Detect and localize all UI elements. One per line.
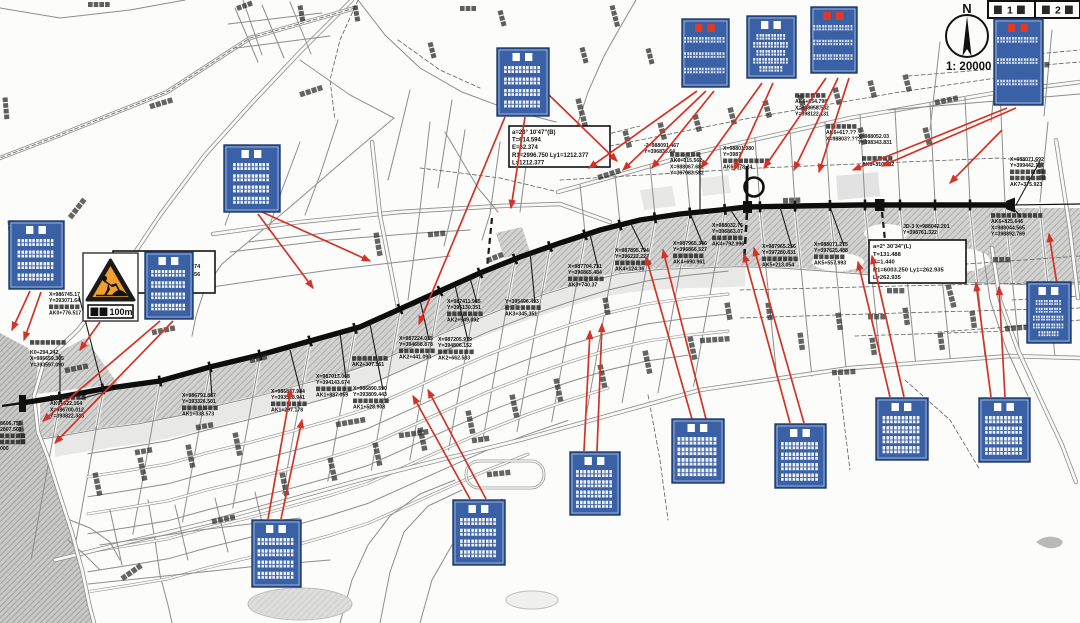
svg-text:AK2+949.092: AK2+949.092 — [447, 318, 479, 324]
svg-text:X=987205.979: X=987205.979 — [438, 337, 472, 343]
svg-text:Y=394806.152: Y=394806.152 — [438, 343, 472, 349]
svg-text:AK2+307.561: AK2+307.561 — [352, 362, 384, 368]
svg-text:AK0+776.517: AK0+776.517 — [49, 311, 81, 317]
svg-text:X=987965.346: X=987965.346 — [673, 241, 707, 247]
svg-text:AK3+740.37: AK3+740.37 — [568, 283, 597, 289]
svg-text:Y=398761.322: Y=398761.322 — [903, 230, 937, 236]
svg-text:E=62.374: E=62.374 — [512, 145, 539, 151]
svg-text:X=988071.275: X=988071.275 — [814, 242, 848, 248]
svg-text:Y=396865.484: Y=396865.484 — [568, 270, 602, 276]
svg-text:Y=398892.769: Y=398892.769 — [991, 232, 1025, 238]
svg-text:Y=397280.831: Y=397280.831 — [762, 250, 796, 256]
svg-text:X=988032.76: X=988032.76 — [712, 223, 743, 229]
svg-text:X=987013.068: X=987013.068 — [316, 374, 350, 380]
svg-text:X=987411.985: X=987411.985 — [447, 299, 481, 305]
svg-text:AK4+690.961: AK4+690.961 — [673, 260, 705, 266]
svg-text:Y=396836.64: Y=396836.64 — [644, 149, 675, 155]
svg-text:Y=396863.07: Y=396863.07 — [712, 229, 743, 235]
svg-text:R1=6003.250 Ly1=262.935: R1=6003.250 Ly1=262.935 — [873, 267, 944, 273]
svg-text:T=131.488: T=131.488 — [873, 252, 902, 258]
svg-text:Y=393326.501: Y=393326.501 — [182, 399, 216, 405]
svg-text:X=987704.731: X=987704.731 — [568, 264, 602, 270]
svg-text:AK3+345.351: AK3+345.351 — [505, 311, 537, 317]
svg-text:Y=393528.941: Y=393528.941 — [271, 395, 305, 401]
svg-text:X=988044.565: X=988044.565 — [991, 225, 1025, 231]
svg-text:R1=2996.750 Ly1=1212.377: R1=2996.750 Ly1=1212.377 — [512, 153, 589, 159]
svg-text:T=614.594: T=614.594 — [512, 138, 542, 144]
svg-text:X=986745.17: X=986745.17 — [49, 292, 80, 298]
svg-text:E=1.440: E=1.440 — [873, 260, 895, 266]
svg-text:Y=397083.582: Y=397083.582 — [670, 171, 704, 177]
svg-text:AK6+015.562: AK6+015.562 — [670, 158, 702, 164]
svg-text:Y=395130.351: Y=395130.351 — [447, 305, 481, 311]
svg-text:Y=394143.674: Y=394143.674 — [316, 380, 350, 386]
svg-text:1: 1 — [1007, 5, 1013, 17]
svg-text:X=987895.794: X=987895.794 — [615, 248, 649, 254]
svg-text:X=986791.887: X=986791.887 — [182, 393, 216, 399]
svg-text:AK5+213.054: AK5+213.054 — [762, 263, 794, 269]
svg-text:AK7+375.923: AK7+375.923 — [1010, 182, 1042, 188]
svg-text:X=987965.256: X=987965.256 — [762, 244, 796, 250]
svg-text:Y=396866.527: Y=396866.527 — [673, 247, 707, 253]
svg-text:a=2° 30'34"(L): a=2° 30'34"(L) — [873, 244, 911, 250]
svg-text:Y=394658.878: Y=394658.878 — [399, 342, 433, 348]
svg-text:AK2+662.583: AK2+662.583 — [438, 356, 470, 362]
svg-text:Y=396222.227: Y=396222.227 — [615, 254, 649, 260]
svg-text:1: 20000: 1: 20000 — [946, 61, 991, 73]
svg-text:X=98803?.???: X=98803?.??? — [826, 136, 861, 142]
svg-text:AK2+441.093: AK2+441.093 — [399, 355, 431, 361]
svg-text:X=986659.305: X=986659.305 — [30, 356, 64, 362]
svg-text:AK6+878.24: AK6+878.24 — [723, 165, 752, 171]
svg-text:AK4+792.996: AK4+792.996 — [712, 242, 744, 248]
svg-text:Y=393809.443: Y=393809.443 — [353, 392, 387, 398]
svg-text:Y=397625.488: Y=397625.488 — [814, 248, 848, 254]
svg-text:AK1+528.908: AK1+528.908 — [353, 405, 385, 411]
svg-text:AK4+124.36: AK4+124.36 — [615, 267, 644, 273]
svg-text:Y=395496.493: Y=395496.493 — [505, 299, 539, 305]
svg-text:AK5+557.993: AK5+557.993 — [814, 261, 846, 267]
svg-text:JD-3 X=988042.201: JD-3 X=988042.201 — [903, 224, 950, 230]
svg-text:X=988071.692: X=988071.692 — [1010, 157, 1044, 163]
svg-text:a=23° 10'47"(B): a=23° 10'47"(B) — [512, 130, 556, 136]
svg-text:Y=393597.090: Y=393597.090 — [30, 362, 64, 368]
svg-text:AK6+825.646: AK6+825.646 — [991, 219, 1023, 225]
svg-text:X=98801.080: X=98801.080 — [723, 146, 754, 152]
svg-text:AK1+887.059: AK1+887.059 — [316, 393, 348, 399]
svg-text:Y=393071.64: Y=393071.64 — [49, 298, 80, 304]
svg-text:X=987224.035: X=987224.035 — [399, 336, 433, 342]
svg-text:K0+294.242: K0+294.242 — [30, 350, 59, 356]
svg-text:100m: 100m — [110, 307, 133, 317]
svg-text:2: 2 — [1055, 5, 1061, 17]
svg-text:AK1+038.573: AK1+038.573 — [182, 412, 214, 418]
svg-text:X=988067.682: X=988067.682 — [670, 164, 704, 170]
svg-text:Y=398?: Y=398? — [723, 152, 741, 158]
svg-text:X=986890.590: X=986890.590 — [353, 386, 387, 392]
svg-text:N: N — [962, 1, 971, 16]
svg-text:X=986837.984: X=986837.984 — [271, 389, 305, 395]
svg-text:000: 000 — [0, 446, 9, 452]
